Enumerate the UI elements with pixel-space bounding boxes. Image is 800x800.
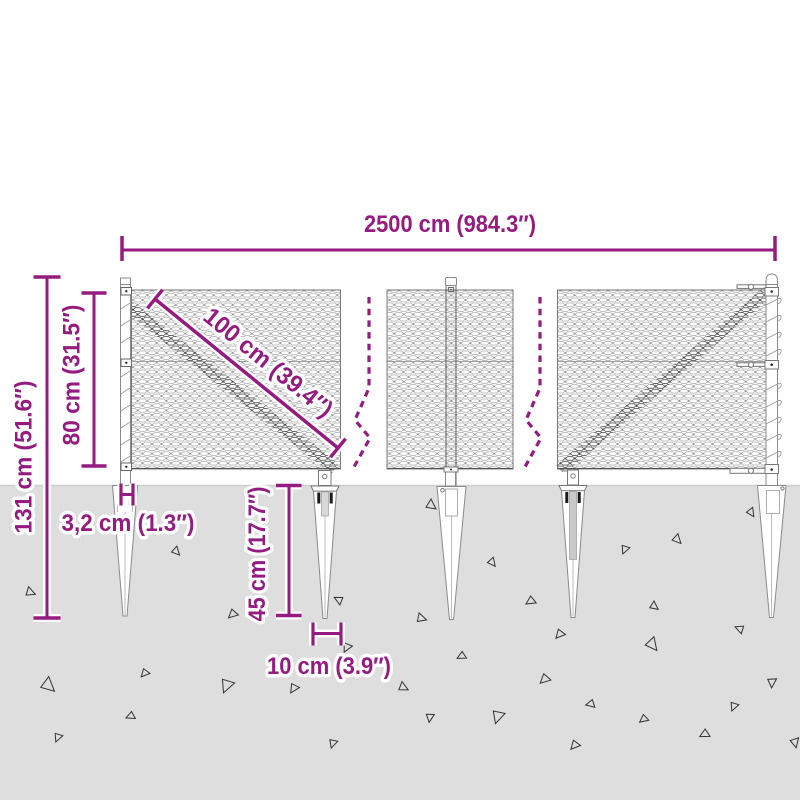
svg-text:3,2 cm (1.3″): 3,2 cm (1.3″) <box>62 510 195 537</box>
svg-text:2500 cm (984.3″): 2500 cm (984.3″) <box>364 211 536 238</box>
svg-text:45 cm (17.7″): 45 cm (17.7″) <box>244 487 271 622</box>
svg-text:10 cm (3.9″): 10 cm (3.9″) <box>267 653 391 680</box>
svg-text:80 cm (31.5″): 80 cm (31.5″) <box>58 305 85 446</box>
svg-text:131 cm (51.6″): 131 cm (51.6″) <box>10 381 37 534</box>
